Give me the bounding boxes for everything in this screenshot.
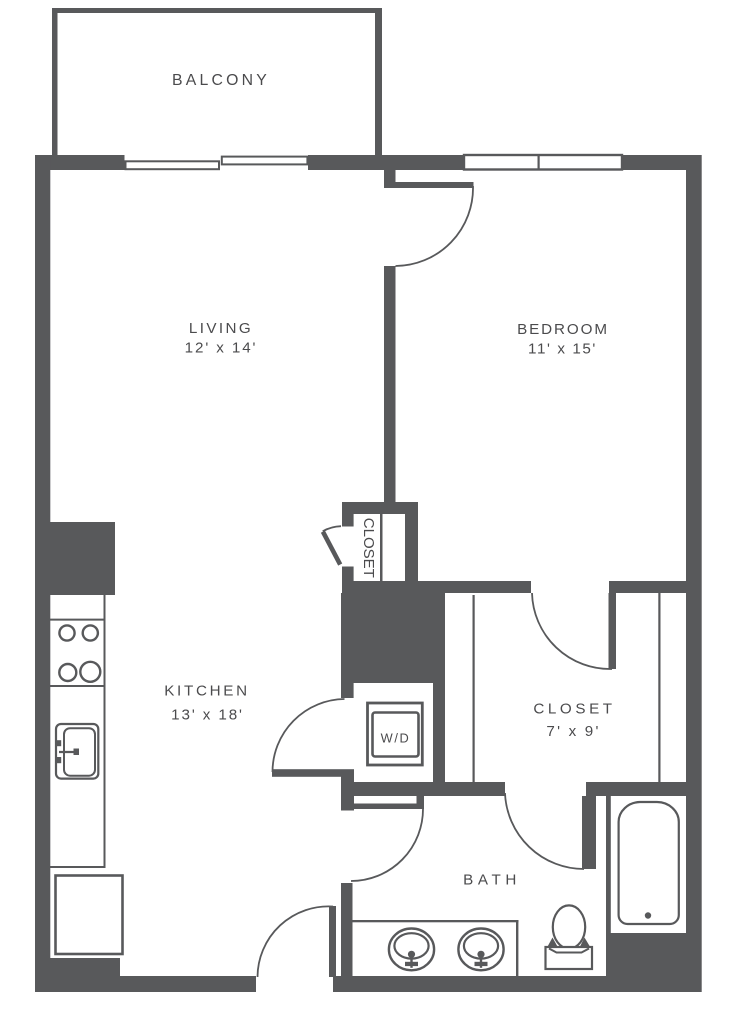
svg-text:CLOSET: CLOSET: [533, 701, 615, 718]
svg-text:11' x 15': 11' x 15': [528, 341, 597, 358]
svg-text:7' x 9': 7' x 9': [546, 723, 600, 740]
svg-text:LIVING: LIVING: [189, 320, 253, 337]
svg-text:BEDROOM: BEDROOM: [517, 321, 609, 338]
svg-text:CLOSET: CLOSET: [360, 518, 377, 578]
svg-text:W/D: W/D: [381, 731, 411, 746]
svg-text:13' x 18': 13' x 18': [171, 707, 244, 724]
svg-text:BALCONY: BALCONY: [172, 72, 270, 89]
svg-text:KITCHEN: KITCHEN: [164, 683, 250, 700]
svg-text:12' x 14': 12' x 14': [185, 340, 258, 357]
svg-text:BATH: BATH: [463, 872, 521, 889]
